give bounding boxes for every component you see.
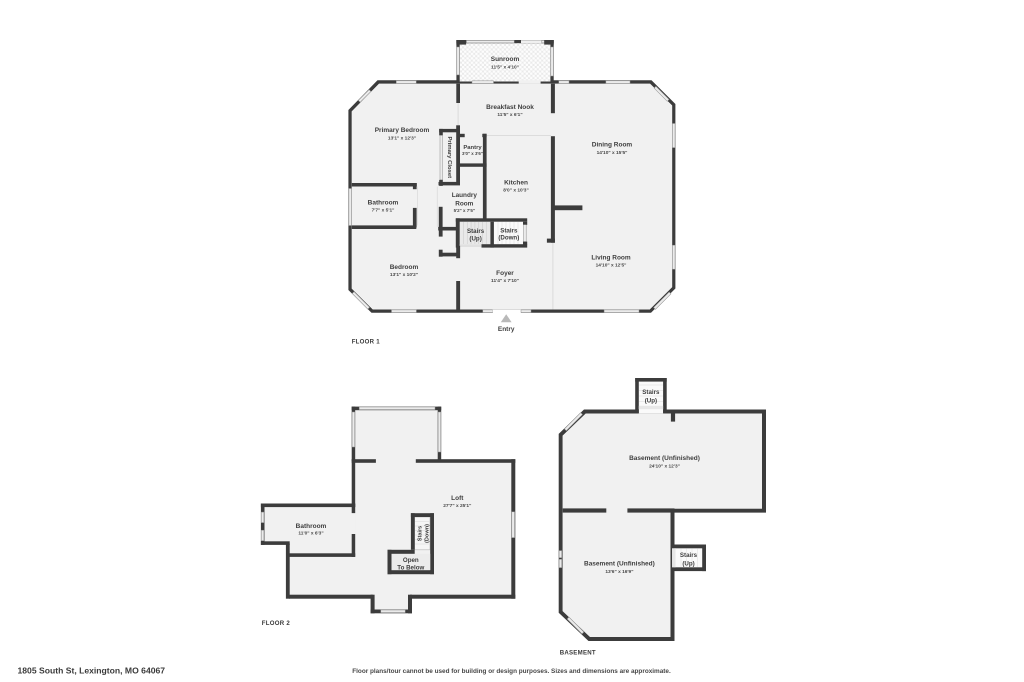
svg-text:Laundry: Laundry xyxy=(452,192,478,199)
svg-text:13'6" x 16'9": 13'6" x 16'9" xyxy=(605,569,633,575)
svg-text:Basement (Unfinished): Basement (Unfinished) xyxy=(629,455,700,462)
svg-text:8'0" x 10'3": 8'0" x 10'3" xyxy=(503,188,529,194)
svg-text:Basement (Unfinished): Basement (Unfinished) xyxy=(584,561,655,568)
svg-text:Floor plans/tour cannot be use: Floor plans/tour cannot be used for buil… xyxy=(352,668,671,675)
svg-text:Kitchen: Kitchen xyxy=(504,179,528,186)
svg-text:11'5" x 4'10": 11'5" x 4'10" xyxy=(491,64,519,70)
svg-text:1805 South St, Lexington, MO 6: 1805 South St, Lexington, MO 64067 xyxy=(18,665,166,675)
svg-text:Bedroom: Bedroom xyxy=(390,264,419,271)
svg-text:14'10" x 12'5": 14'10" x 12'5" xyxy=(596,263,627,269)
svg-text:Stairs: Stairs xyxy=(500,227,518,234)
svg-text:Pantry: Pantry xyxy=(463,145,482,151)
svg-text:Stairs: Stairs xyxy=(680,552,698,559)
svg-text:Bathroom: Bathroom xyxy=(368,200,399,207)
svg-text:To Below: To Below xyxy=(397,564,424,571)
svg-text:Primary Bedroom: Primary Bedroom xyxy=(375,127,430,134)
svg-text:Stairs: Stairs xyxy=(467,228,485,235)
svg-text:Foyer: Foyer xyxy=(496,270,514,277)
svg-text:11'5" x 6'1": 11'5" x 6'1" xyxy=(497,112,522,118)
svg-text:27'7" x 25'1": 27'7" x 25'1" xyxy=(443,503,471,509)
svg-text:14'10" x 15'5": 14'10" x 15'5" xyxy=(597,150,628,156)
svg-text:Dining Room: Dining Room xyxy=(592,142,633,149)
svg-text:Breakfast Nook: Breakfast Nook xyxy=(486,104,534,111)
svg-text:3'0" x 3'6": 3'0" x 3'6" xyxy=(462,151,483,156)
svg-text:11'4" x 7'10": 11'4" x 7'10" xyxy=(491,278,519,284)
svg-text:(Up): (Up) xyxy=(682,561,694,568)
svg-text:FLOOR 2: FLOOR 2 xyxy=(262,620,291,627)
svg-text:Bathroom: Bathroom xyxy=(296,523,327,530)
svg-text:(Up): (Up) xyxy=(469,235,481,242)
svg-text:11'0" x 6'3": 11'0" x 6'3" xyxy=(298,531,323,537)
svg-text:Open: Open xyxy=(403,557,419,564)
svg-text:Sunroom: Sunroom xyxy=(491,56,520,63)
svg-text:Stairs: Stairs xyxy=(417,526,423,542)
svg-text:(Up): (Up) xyxy=(645,397,657,404)
svg-text:Living Room: Living Room xyxy=(591,254,631,261)
svg-text:FLOOR 1: FLOOR 1 xyxy=(352,338,381,345)
svg-text:Stairs: Stairs xyxy=(642,389,660,396)
svg-text:7'7" x 5'1": 7'7" x 5'1" xyxy=(372,208,395,214)
svg-text:Room: Room xyxy=(455,200,473,207)
svg-text:Entry: Entry xyxy=(498,326,515,333)
svg-text:24'10" x 12'3": 24'10" x 12'3" xyxy=(649,463,680,469)
svg-text:Loft: Loft xyxy=(451,495,464,502)
svg-text:(Down): (Down) xyxy=(498,235,519,242)
svg-text:(Down): (Down) xyxy=(424,524,430,543)
svg-text:13'1" x 12'3": 13'1" x 12'3" xyxy=(388,135,416,141)
svg-text:BASEMENT: BASEMENT xyxy=(560,650,596,657)
svg-text:13'1" x 10'2": 13'1" x 10'2" xyxy=(390,272,418,278)
svg-text:5'2" x 7'5": 5'2" x 7'5" xyxy=(454,208,475,213)
svg-text:Primary Closet: Primary Closet xyxy=(446,137,452,179)
